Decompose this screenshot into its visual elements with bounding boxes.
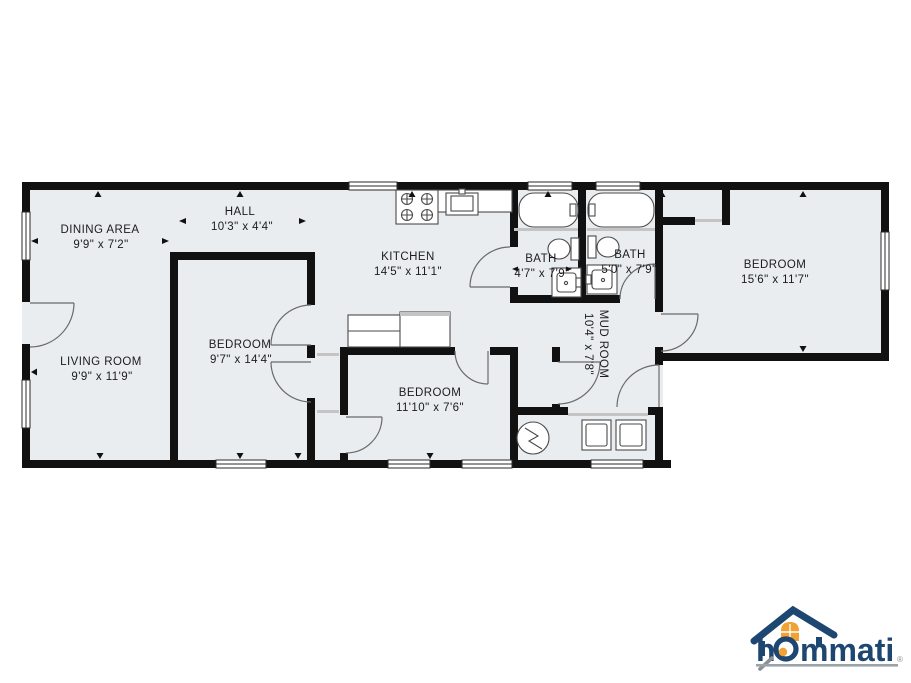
svg-text:9'9" x 11'9": 9'9" x 11'9" <box>71 371 132 383</box>
svg-text:14'5" x 11'1": 14'5" x 11'1" <box>374 266 442 278</box>
svg-text:MUD ROOM: MUD ROOM <box>597 310 609 379</box>
svg-text:BEDROOM: BEDROOM <box>744 259 807 271</box>
svg-text:9'9" x 7'2": 9'9" x 7'2" <box>73 239 128 251</box>
svg-text:BATH: BATH <box>614 249 646 261</box>
logo-underline <box>756 664 898 667</box>
svg-text:10'3" x 4'4": 10'3" x 4'4" <box>211 221 273 233</box>
washer <box>582 420 611 450</box>
stove <box>396 190 438 224</box>
svg-text:BEDROOM: BEDROOM <box>399 387 462 399</box>
floor-footprint <box>22 182 889 468</box>
kitchen-sink <box>446 189 478 215</box>
kitchen-island <box>348 312 450 347</box>
svg-text:BATH: BATH <box>525 253 557 265</box>
closet-shelf <box>317 353 339 356</box>
closet-shelf <box>317 410 339 413</box>
svg-text:KITCHEN: KITCHEN <box>381 251 435 263</box>
svg-text:5'0" x 7'9": 5'0" x 7'9" <box>601 264 656 276</box>
svg-text:4'7" x 7'9": 4'7" x 7'9" <box>514 268 569 280</box>
floorplan-canvas: DINING AREA 9'9" x 7'2" HALL 10'3" x 4'4… <box>0 0 911 683</box>
floorplan-page: DINING AREA 9'9" x 7'2" HALL 10'3" x 4'4… <box>0 0 911 683</box>
logo-text-rest: mmati <box>800 632 894 668</box>
closet-rod <box>695 219 722 222</box>
registered-mark: ® <box>897 655 903 664</box>
water-heater <box>517 422 549 454</box>
svg-text:11'10" x 7'6": 11'10" x 7'6" <box>396 402 464 414</box>
svg-text:15'6" x 11'7": 15'6" x 11'7" <box>741 274 809 286</box>
hommati-logo: h mmati ® <box>754 610 903 669</box>
dryer <box>616 420 646 450</box>
bathtub <box>588 193 654 227</box>
svg-text:LIVING ROOM: LIVING ROOM <box>60 356 142 368</box>
svg-text:BEDROOM: BEDROOM <box>209 339 272 351</box>
laundry-shelf <box>568 413 648 416</box>
svg-text:9'7" x 14'4": 9'7" x 14'4" <box>210 354 272 366</box>
svg-text:DINING AREA: DINING AREA <box>60 224 139 236</box>
bathtub <box>519 193 578 227</box>
svg-text:10'4" x 7'8": 10'4" x 7'8" <box>582 313 594 375</box>
svg-text:HALL: HALL <box>225 206 256 218</box>
